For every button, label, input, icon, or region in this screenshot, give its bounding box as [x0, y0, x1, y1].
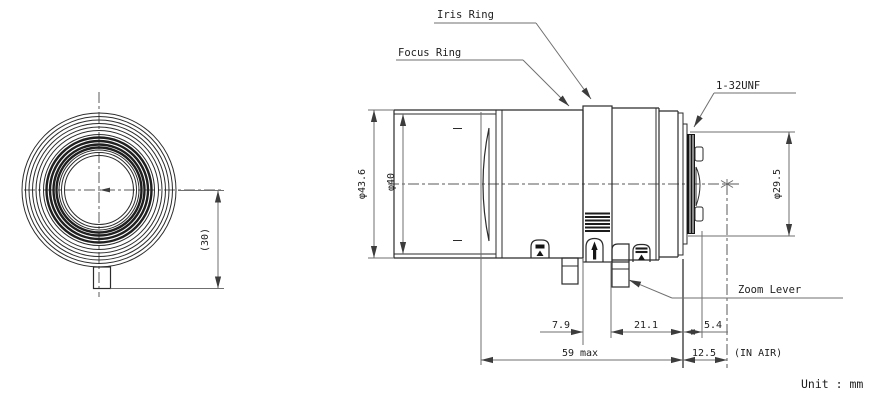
- front-view: (30): [22, 92, 224, 297]
- focus-lever-tab: [562, 258, 578, 284]
- dim-rear-protrusion: 5.4: [704, 320, 722, 331]
- unit-note: Unit : mm: [801, 377, 863, 391]
- mount-thread: [687, 134, 703, 234]
- lens-technical-drawing: (30): [0, 0, 877, 400]
- callout-labels: Iris Ring Focus Ring 1-32UNF Zoom Lever: [396, 9, 843, 298]
- label-iris-ring: Iris Ring: [437, 9, 494, 21]
- center-mark-arrow: [100, 188, 110, 193]
- note-in-air: (IN AIR): [734, 348, 782, 359]
- lock-knob-iris: [586, 239, 603, 263]
- zoom-lever-tab: [612, 244, 629, 287]
- dim-front-group-diameter: φ40: [386, 173, 397, 191]
- side-view-dimensions: φ43.6 φ40 φ29.5 7.9 21.1 5.4 59 max 12.5…: [357, 110, 795, 368]
- label-mount-thread: 1-32UNF: [716, 80, 760, 92]
- dim-overall-length: 59 max: [562, 348, 598, 359]
- dim-rear-barrel-length: 21.1: [634, 320, 658, 331]
- dim-outer-diameter: φ43.6: [357, 169, 368, 199]
- drawing-svg: (30): [0, 0, 877, 400]
- dim-iris-ring-width: 7.9: [552, 320, 570, 331]
- dim-mount-image-diameter: φ29.5: [772, 169, 783, 199]
- front-zoom-lever-tab: [94, 267, 111, 289]
- dim-back-focal-distance: 12.5: [692, 348, 716, 359]
- label-focus-ring: Focus Ring: [398, 47, 461, 59]
- lock-knob-zoom: [633, 245, 650, 263]
- label-zoom-lever: Zoom Lever: [738, 284, 801, 296]
- dim-lever-offset: (30): [200, 228, 211, 252]
- rear-lens-element: [696, 167, 700, 206]
- image-plane-mark: [721, 179, 733, 368]
- lock-knob-focus: [531, 240, 549, 258]
